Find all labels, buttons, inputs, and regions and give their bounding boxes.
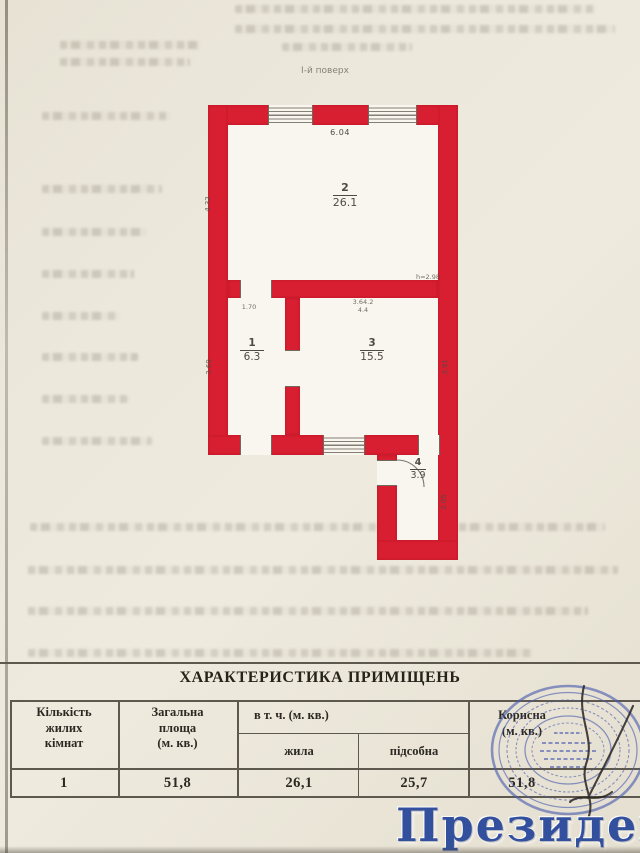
dimension-room1-left: 3.69 xyxy=(205,359,213,375)
header-including: в т. ч. (м. кв.) xyxy=(240,708,466,724)
room-area: 6.3 xyxy=(222,351,282,363)
header-living: жила xyxy=(240,744,358,760)
dimension-room3-top: 3.64.2 4.4 xyxy=(335,299,391,315)
page-edge-shadow xyxy=(0,846,640,853)
dimension-top: 6.04 xyxy=(300,128,380,137)
room-area: 15.5 xyxy=(337,351,407,363)
room-number: 2 xyxy=(333,182,357,196)
room-label-4: 4 3.9 xyxy=(400,458,436,481)
ceiling-height-note: h=2.98 xyxy=(390,273,440,281)
room-area: 3.9 xyxy=(400,470,436,481)
room-area: 26.1 xyxy=(305,196,385,209)
room-label-3: 3 15.5 xyxy=(337,338,407,363)
window xyxy=(368,105,417,125)
divider-line xyxy=(0,662,640,664)
header-room-count: Кількість жилих кімнат xyxy=(12,705,116,752)
header-total-area: Загальна площа (м. кв.) xyxy=(120,705,235,752)
cell-room-count: 1 xyxy=(12,774,116,792)
window xyxy=(418,435,440,455)
dimension-room1-top: 1.70 xyxy=(232,303,266,311)
wall-top xyxy=(208,105,458,125)
ghost-text-line xyxy=(28,649,533,657)
scanned-floor-plan-page: { "colors": { "plan_red": "#d81f31", "st… xyxy=(0,0,640,853)
table-line xyxy=(237,700,239,797)
table-line xyxy=(237,733,468,734)
room-number: 1 xyxy=(240,338,263,351)
dimension-room2-left: 4.32 xyxy=(204,196,212,212)
wall-right xyxy=(438,105,458,560)
watermark-text: Президент xyxy=(396,798,640,852)
wall-room4-bottom xyxy=(377,540,458,560)
table-line xyxy=(468,700,470,797)
cell-living-area: 26,1 xyxy=(240,774,358,792)
room-label-2: 2 26.1 xyxy=(305,182,385,208)
wall-left xyxy=(208,105,228,455)
window xyxy=(240,435,272,455)
window xyxy=(268,105,313,125)
cell-total-area: 51,8 xyxy=(120,774,235,792)
header-auxiliary: підсобна xyxy=(360,744,468,760)
window xyxy=(323,435,365,455)
dimension-room3-right: 3.91 xyxy=(441,359,449,375)
room-label-1: 1 6.3 xyxy=(222,338,282,363)
door-opening xyxy=(285,350,300,387)
floor-plan: 6.04 4.32 1.70 3.69 3.64.2 4.4 3.91 2.05… xyxy=(0,0,640,640)
dimension-room4-right: 2.05 xyxy=(440,494,448,510)
room-number: 4 xyxy=(410,458,427,470)
cell-auxiliary-area: 25,7 xyxy=(360,774,468,792)
room-number: 3 xyxy=(360,338,383,351)
door-opening xyxy=(240,280,272,298)
